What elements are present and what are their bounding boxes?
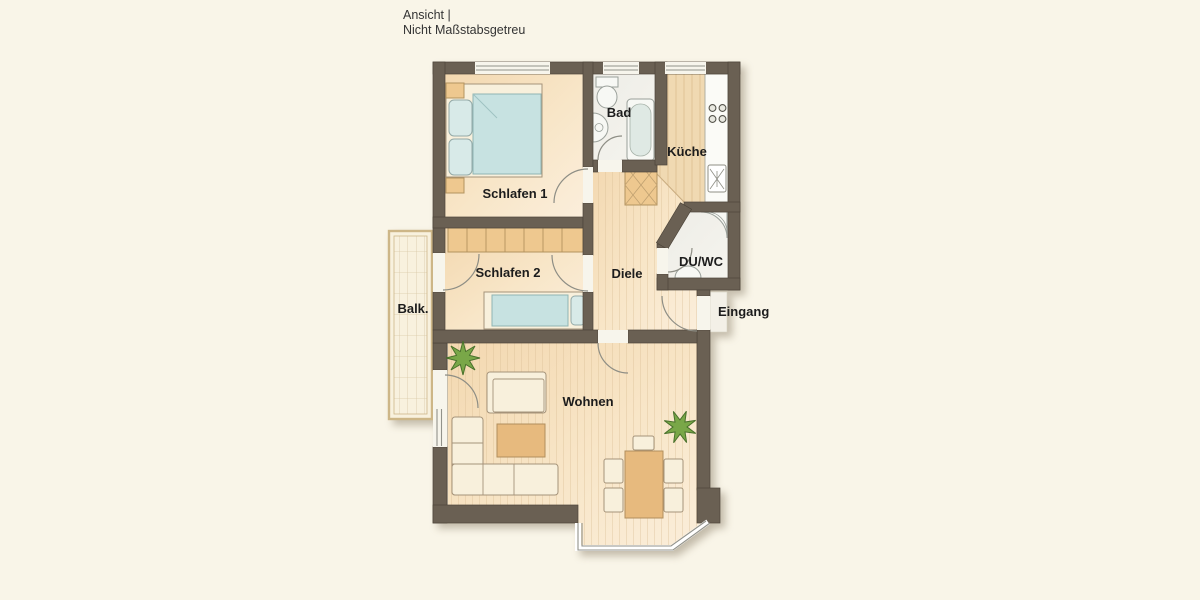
room-label-balkon: Balk.	[397, 301, 428, 316]
balcony-tiles	[394, 236, 427, 414]
room-label-bad: Bad	[607, 105, 632, 120]
dining-chair	[664, 459, 683, 483]
dining-chair	[604, 459, 623, 483]
wall-segment	[433, 505, 578, 523]
stove-burner	[709, 105, 716, 112]
wall-segment	[583, 203, 593, 255]
wall-segment	[684, 202, 740, 212]
bathtub-basin	[630, 104, 651, 156]
dining-chair	[664, 488, 683, 512]
floor-plan-page: Ansicht | Nicht Maßstabsgetreu Schlafen …	[0, 0, 1200, 600]
balcony	[389, 231, 432, 419]
entrance-door-opening	[697, 296, 710, 330]
floor-plan	[389, 62, 740, 550]
bed-blanket	[492, 295, 568, 326]
door-opening	[433, 370, 447, 408]
window	[475, 62, 550, 74]
wall-segment	[433, 330, 598, 343]
dining-chair	[604, 488, 623, 512]
pillow	[449, 100, 472, 136]
pillow	[449, 139, 472, 175]
nightstand	[446, 178, 464, 193]
wall-segment	[657, 274, 668, 290]
dining-chair	[633, 436, 654, 450]
door-opening	[583, 167, 593, 203]
stove-burner	[719, 105, 726, 112]
kueche-fixtures	[705, 74, 728, 202]
window	[433, 408, 447, 447]
door-opening	[583, 255, 593, 292]
wall-segment	[697, 488, 720, 523]
wall-segment	[697, 330, 710, 490]
room-label-schlafen2: Schlafen 2	[475, 265, 540, 280]
loveseat	[487, 372, 546, 413]
window	[665, 62, 706, 74]
wall-segment	[433, 292, 445, 330]
room-label-diele: Diele	[611, 266, 642, 281]
annotation-eingang: Eingang	[718, 304, 769, 319]
wardrobe	[448, 228, 583, 252]
wall-segment	[697, 290, 710, 296]
stove-burner	[709, 116, 716, 123]
nightstand	[446, 83, 464, 98]
floor-plan-canvas: Ansicht | Nicht Maßstabsgetreu Schlafen …	[0, 0, 1200, 600]
view-note-line1: Ansicht |	[403, 8, 451, 22]
sofa-bottom	[452, 464, 558, 495]
door-opening	[433, 253, 445, 292]
wall-segment	[593, 160, 598, 172]
bed-blanket	[473, 94, 541, 174]
wall-segment	[583, 292, 593, 330]
room-label-duwc: DU/WC	[679, 254, 724, 269]
wall-segment	[655, 62, 667, 165]
room-label-schlafen1: Schlafen 1	[482, 186, 547, 201]
wall-segment	[628, 330, 697, 343]
wall-segment	[433, 343, 447, 370]
plant-icon	[446, 341, 480, 375]
wall-segment	[622, 160, 657, 172]
view-note-line2: Nicht Maßstabsgetreu	[403, 23, 525, 37]
wall-segment	[583, 62, 593, 167]
room-label-kueche: Küche	[667, 144, 707, 159]
stove-burner	[719, 116, 726, 123]
door-opening	[657, 248, 668, 274]
wall-segment	[433, 217, 583, 228]
door-opening	[598, 330, 628, 343]
dining-table	[625, 451, 663, 518]
schlafen1-furniture	[446, 83, 542, 193]
room-label-wohnen: Wohnen	[562, 394, 613, 409]
window	[603, 62, 639, 74]
door-opening	[598, 160, 622, 172]
coffee-table	[497, 424, 545, 457]
wall-segment	[657, 278, 740, 290]
wall-segment	[728, 62, 740, 290]
